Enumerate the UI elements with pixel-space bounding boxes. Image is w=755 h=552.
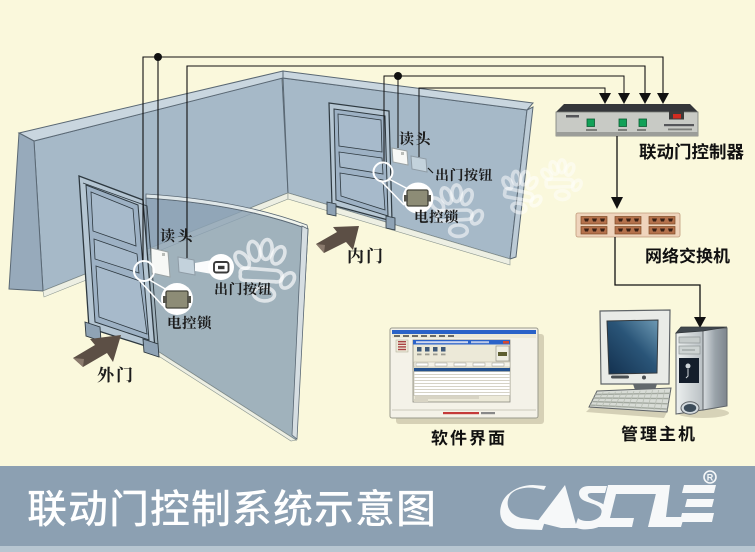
svg-text:R: R bbox=[707, 473, 714, 483]
